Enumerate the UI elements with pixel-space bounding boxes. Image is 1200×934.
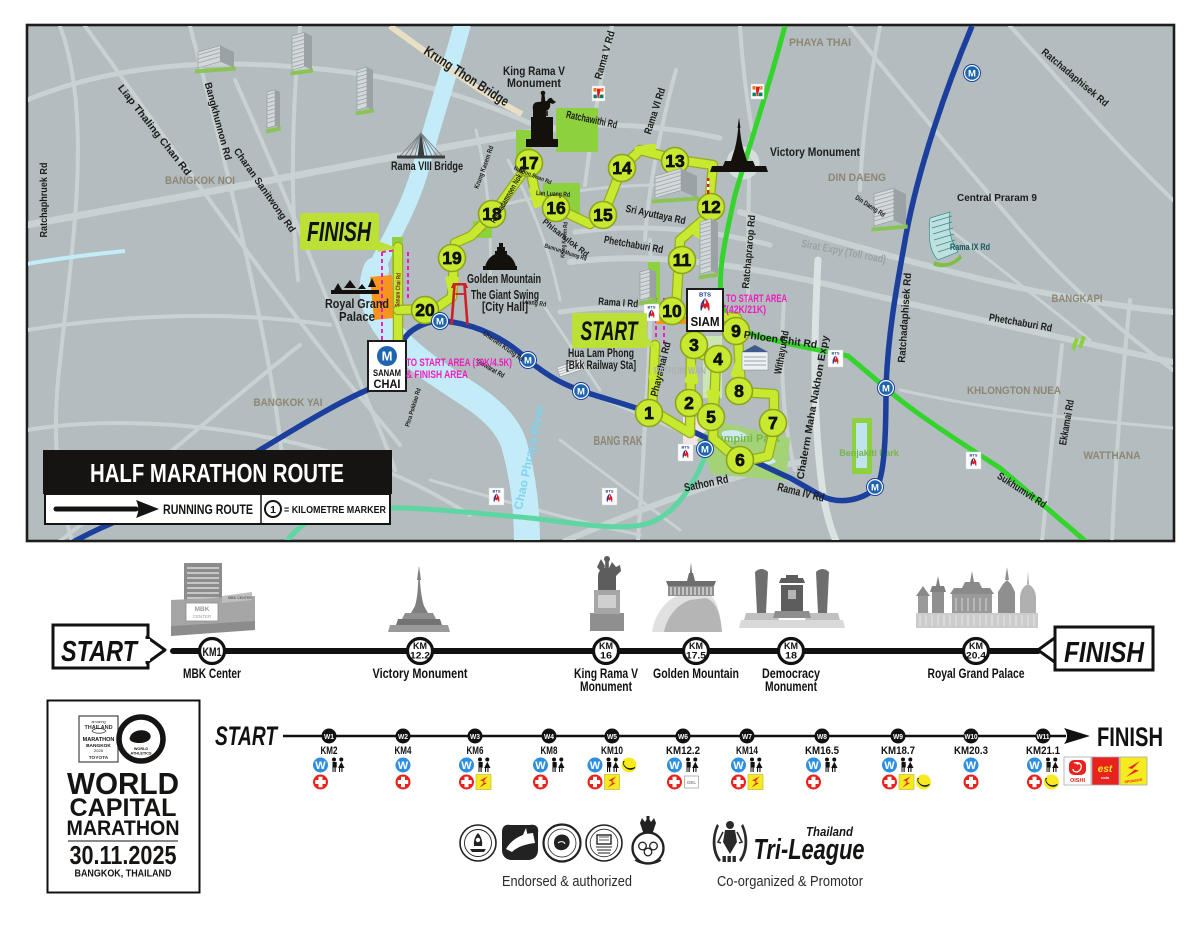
svg-text:KM4: KM4	[395, 745, 413, 757]
svg-text:Co-organized & Promotor: Co-organized & Promotor	[717, 874, 863, 890]
svg-text:Central Praram 9: Central Praram 9	[957, 192, 1037, 204]
svg-text:Endorsed & authorized: Endorsed & authorized	[502, 874, 632, 890]
svg-text:M: M	[968, 68, 976, 79]
svg-text:BANGKAPI: BANGKAPI	[1052, 293, 1103, 305]
svg-text:BTS: BTS	[648, 306, 656, 310]
svg-text:W5: W5	[607, 732, 617, 741]
svg-text:M: M	[871, 482, 879, 493]
svg-text:BTS: BTS	[970, 454, 978, 458]
svg-text:KM: KM	[689, 641, 703, 651]
svg-text:W: W	[590, 760, 601, 772]
svg-text:WATTHANA: WATTHANA	[1084, 450, 1141, 462]
svg-text:5: 5	[706, 407, 716, 427]
svg-text:M: M	[882, 383, 890, 394]
svg-text:KM6: KM6	[467, 745, 484, 757]
svg-text:cola: cola	[1101, 775, 1110, 780]
svg-text:FINISH: FINISH	[307, 216, 372, 247]
svg-text:PATHUM WAN: PATHUM WAN	[654, 366, 706, 377]
svg-text:9: 9	[731, 321, 741, 341]
svg-text:KM: KM	[599, 641, 613, 651]
svg-text:= KILOMETRE MARKER: = KILOMETRE MARKER	[284, 504, 386, 516]
svg-text:WORLD: WORLD	[134, 747, 149, 751]
svg-text:Tri-League: Tri-League	[754, 834, 865, 866]
svg-text:START: START	[581, 316, 640, 346]
svg-text:1: 1	[270, 504, 276, 516]
svg-text:KM1: KM1	[203, 647, 222, 659]
svg-text:17.5: 17.5	[686, 651, 706, 661]
svg-text:W: W	[884, 760, 895, 772]
svg-text:KM10: KM10	[601, 745, 623, 757]
svg-text:TO START AREA (10K/4.5K): TO START AREA (10K/4.5K)	[406, 357, 512, 369]
svg-text:Victory Monument: Victory Monument	[373, 666, 468, 681]
svg-text:HALF MARATHON ROUTE: HALF MARATHON ROUTE	[90, 458, 344, 488]
svg-text:W3: W3	[470, 732, 480, 741]
svg-text:20.4: 20.4	[966, 651, 986, 661]
svg-text:Ratchaphruek Rd: Ratchaphruek Rd	[39, 163, 50, 238]
svg-text:18: 18	[785, 651, 797, 661]
svg-text:W9: W9	[893, 732, 903, 741]
svg-text:M: M	[436, 316, 444, 327]
svg-text:19: 19	[442, 248, 462, 268]
svg-text:W: W	[808, 760, 819, 772]
svg-text:Royal Grand Palace: Royal Grand Palace	[928, 666, 1025, 681]
svg-text:CENTER: CENTER	[193, 614, 212, 619]
svg-text:30.11.2025: 30.11.2025	[70, 840, 177, 870]
svg-text:(42K/21K): (42K/21K)	[726, 304, 766, 316]
svg-text:W11: W11	[1037, 732, 1050, 741]
svg-text:RUNNING ROUTE: RUNNING ROUTE	[163, 502, 253, 517]
svg-text:BTS: BTS	[699, 293, 712, 299]
svg-text:BTS: BTS	[832, 352, 840, 356]
svg-text:Rama VIII Bridge: Rama VIII Bridge	[391, 161, 463, 173]
svg-text:[Bkk Railway Sta]: [Bkk Railway Sta]	[566, 360, 636, 372]
svg-text:MARATHON: MARATHON	[83, 737, 115, 743]
svg-text:MBK CENTER: MBK CENTER	[228, 596, 252, 600]
svg-text:MBK: MBK	[195, 606, 210, 613]
svg-text:OISHI: OISHI	[1070, 778, 1085, 784]
svg-text:KM18.7: KM18.7	[881, 745, 915, 757]
svg-text:M: M	[577, 386, 585, 397]
svg-text:est: est	[1098, 764, 1113, 775]
svg-text:W6: W6	[678, 732, 688, 741]
svg-text:W1: W1	[324, 732, 334, 741]
svg-text:16: 16	[546, 198, 566, 218]
svg-text:KM21.1: KM21.1	[1026, 745, 1060, 757]
svg-text:KHLONGTON NUEA: KHLONGTON NUEA	[967, 385, 1061, 397]
svg-text:START: START	[215, 721, 279, 751]
svg-text:Palace: Palace	[339, 310, 375, 324]
svg-text:BTS: BTS	[606, 490, 614, 494]
svg-text:PHAYA THAI: PHAYA THAI	[789, 37, 851, 49]
svg-text:KM14: KM14	[736, 745, 759, 757]
svg-text:W8: W8	[817, 732, 827, 741]
svg-text:M: M	[382, 349, 393, 364]
svg-text:TOYOTA: TOYOTA	[89, 755, 109, 761]
svg-text:14: 14	[612, 158, 632, 178]
svg-text:BANGKOK, THAILAND: BANGKOK, THAILAND	[75, 868, 172, 880]
svg-text:BTS: BTS	[493, 490, 501, 494]
svg-text:Monument: Monument	[765, 679, 817, 694]
svg-text:Monument: Monument	[507, 78, 561, 90]
svg-text:Hua Lam Phong: Hua Lam Phong	[568, 348, 634, 360]
svg-text:W: W	[461, 760, 472, 772]
svg-text:2: 2	[684, 393, 694, 413]
svg-text:15: 15	[593, 205, 613, 225]
svg-text:W: W	[535, 760, 546, 772]
svg-text:3: 3	[689, 335, 699, 355]
svg-text:CHAI: CHAI	[374, 377, 401, 391]
svg-text:W: W	[1029, 760, 1040, 772]
svg-text:SIAM: SIAM	[691, 315, 720, 329]
svg-text:13: 13	[665, 151, 685, 171]
svg-text:1: 1	[644, 403, 654, 423]
svg-text:W: W	[315, 760, 326, 772]
svg-text:W4: W4	[544, 732, 555, 741]
svg-text:KM20.3: KM20.3	[954, 745, 988, 757]
svg-text:FINISH: FINISH	[1097, 722, 1163, 752]
svg-text:2025: 2025	[94, 748, 104, 753]
svg-text:Benjakiti Park: Benjakiti Park	[839, 448, 900, 458]
svg-text:KM8: KM8	[541, 745, 558, 757]
svg-text:THAILAND: THAILAND	[84, 725, 112, 731]
svg-text:KM: KM	[413, 641, 427, 651]
svg-text:M: M	[701, 444, 709, 455]
svg-text:W: W	[733, 760, 744, 772]
svg-text:8: 8	[734, 381, 744, 401]
svg-text:W7: W7	[742, 732, 752, 741]
svg-text:START: START	[61, 636, 139, 668]
svg-text:BANG RAK: BANG RAK	[594, 433, 643, 448]
svg-text:KM: KM	[969, 641, 983, 651]
svg-text:W10: W10	[965, 732, 978, 741]
svg-text:16: 16	[600, 651, 612, 661]
svg-text:GEL: GEL	[687, 780, 697, 785]
svg-text:King Rama V: King Rama V	[503, 66, 565, 78]
svg-text:W2: W2	[398, 732, 408, 741]
svg-text:DIN DAENG: DIN DAENG	[828, 172, 886, 184]
svg-text:12: 12	[701, 197, 721, 217]
svg-text:Monument: Monument	[580, 679, 632, 694]
svg-text:Golden Mountain: Golden Mountain	[653, 666, 739, 681]
svg-text:& FINISH AREA: & FINISH AREA	[406, 369, 468, 381]
svg-text:Victory Monument: Victory Monument	[770, 147, 860, 159]
svg-text:12.2: 12.2	[410, 651, 430, 661]
svg-text:Rama IX Rd: Rama IX Rd	[950, 242, 990, 252]
svg-text:W: W	[669, 760, 680, 772]
svg-text:BANGKOK NOI: BANGKOK NOI	[165, 175, 235, 187]
svg-text:KM16.5: KM16.5	[805, 745, 839, 757]
svg-text:ATHLETICS: ATHLETICS	[130, 752, 151, 756]
svg-text:W: W	[966, 760, 977, 772]
svg-text:10: 10	[662, 301, 682, 321]
svg-text:amazing: amazing	[91, 720, 105, 724]
svg-text:KM: KM	[784, 641, 798, 651]
svg-text:7: 7	[768, 413, 778, 433]
svg-text:BANGKOK YAI: BANGKOK YAI	[254, 397, 323, 409]
svg-text:Golden Mountain: Golden Mountain	[467, 272, 541, 286]
svg-text:BTS: BTS	[682, 446, 690, 450]
svg-text:[City Hall]: [City Hall]	[482, 300, 528, 314]
svg-text:Sanam Chai Rd: Sanam Chai Rd	[394, 273, 402, 307]
svg-text:MARATHON: MARATHON	[67, 816, 180, 840]
svg-text:11: 11	[673, 250, 692, 270]
svg-text:KM12.2: KM12.2	[666, 745, 700, 757]
svg-text:6: 6	[735, 450, 745, 470]
svg-text:FINISH: FINISH	[1064, 637, 1145, 669]
svg-text:M: M	[524, 355, 532, 366]
svg-text:KM2: KM2	[321, 745, 338, 757]
svg-text:W: W	[398, 760, 409, 772]
svg-text:4: 4	[713, 349, 723, 369]
svg-text:Royal Grand: Royal Grand	[325, 297, 389, 311]
svg-text:MBK Center: MBK Center	[183, 666, 242, 681]
